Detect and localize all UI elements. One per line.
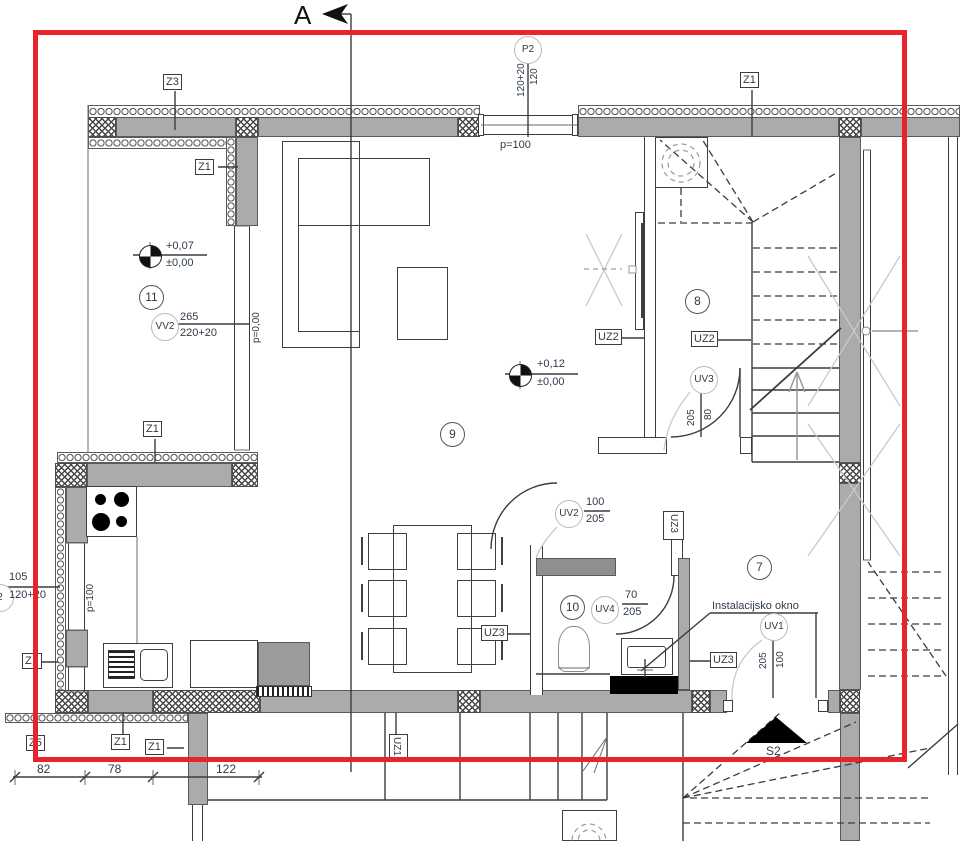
dimension-122: 122 (216, 762, 236, 776)
floor-plan: A P2 120 120+20 p=100 Z3 Z1 Z1 Z1 +0,07 … (0, 0, 960, 841)
dashed-circle-fixture (572, 824, 606, 841)
dimension-82: 82 (37, 762, 50, 776)
red-selection-box (33, 30, 907, 762)
dimension-78: 78 (108, 762, 121, 776)
section-label: A (294, 0, 311, 31)
window-dim: 105 (9, 571, 27, 583)
dashed-circle-fixture (578, 830, 600, 841)
stair-stringer (908, 724, 958, 768)
